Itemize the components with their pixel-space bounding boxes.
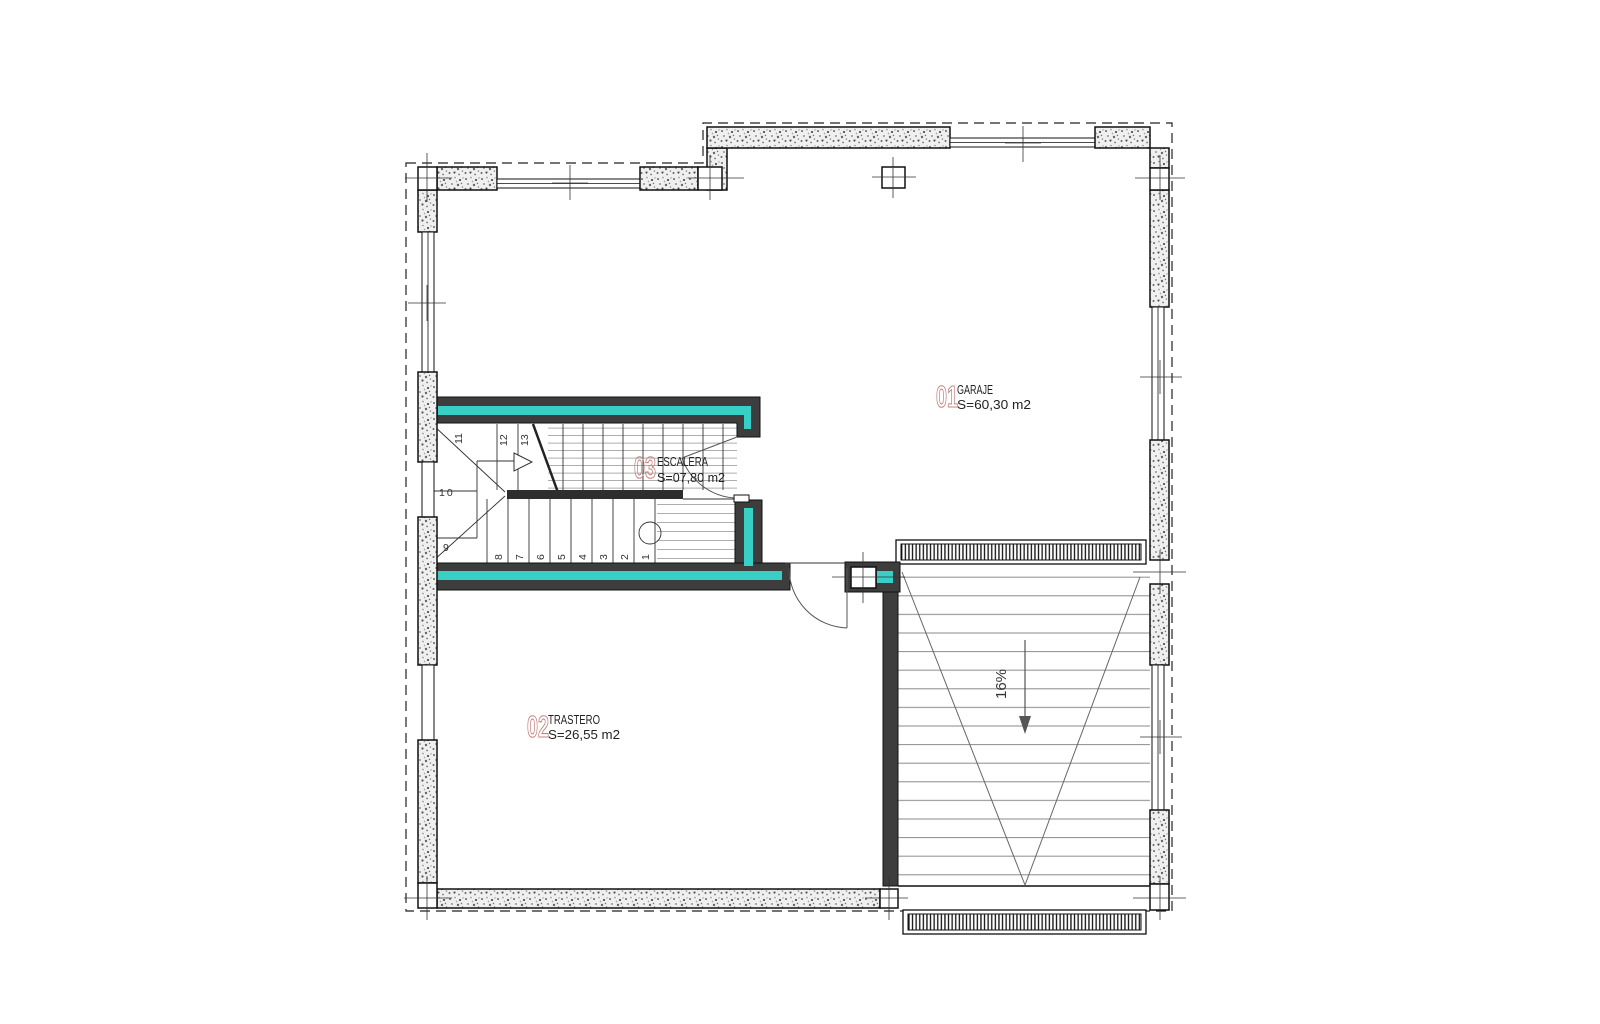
corner-column-top-right (1150, 168, 1169, 190)
svg-text:3: 3 (598, 554, 610, 560)
ramp-head-column (851, 567, 876, 588)
room-number-trastero: 02 (527, 709, 549, 744)
corner-column-bottom-right (1150, 884, 1169, 910)
room-area-escalera: S=07,80 m2 (657, 470, 725, 485)
svg-text:13: 13 (519, 434, 531, 446)
room-number-garaje: 01 (936, 379, 958, 414)
floor-plan-canvas: 16% (0, 0, 1600, 1024)
stair-direction-arrow-icon (514, 453, 532, 471)
room-name-trastero: TRASTERO (548, 712, 600, 727)
room-name-escalera: ESCALERA (657, 454, 708, 469)
svg-text:1: 1 (640, 554, 652, 560)
stair-stem-wall-highlight (744, 508, 753, 566)
svg-text:4: 4 (577, 554, 589, 560)
room-name-garaje: GARAJE (957, 382, 993, 397)
svg-text:2: 2 (619, 554, 631, 560)
svg-text:5: 5 (556, 554, 568, 560)
svg-text:10: 10 (439, 487, 455, 499)
stair-bottom-wall-highlight (437, 571, 782, 580)
room-area-garaje: S=60,30 m2 (957, 397, 1031, 412)
stair-mid-edge (507, 490, 683, 499)
svg-text:6: 6 (535, 554, 547, 560)
garage-column (882, 167, 905, 188)
drain-grate-bottom (903, 910, 1146, 934)
stair-lower-treads (487, 499, 655, 563)
ramp-area: 16% (832, 540, 1150, 934)
trastero-door (785, 563, 847, 628)
svg-text:8: 8 (493, 554, 505, 560)
stair-lower-landing-hatch (657, 499, 735, 563)
ramp-slope-label: 16% (993, 669, 1010, 699)
corner-column-bottom-left (418, 883, 437, 908)
room-label-trastero: 02 TRASTERO S=26,55 m2 (527, 709, 620, 744)
room-number-escalera: 03 (634, 450, 656, 485)
svg-text:11: 11 (453, 433, 465, 444)
stair-door-frame (734, 495, 749, 502)
svg-text:12: 12 (498, 434, 510, 446)
stair-area: 1 2 3 4 5 6 7 8 9 10 11 12 13 (429, 397, 790, 590)
svg-text:7: 7 (514, 554, 526, 560)
floor-plan-page: 16% (0, 0, 1600, 1024)
corner-column-top-left (418, 167, 437, 190)
svg-text:9: 9 (443, 542, 449, 554)
room-area-trastero: S=26,55 m2 (548, 727, 620, 742)
room-label-garaje: 01 GARAJE S=60,30 m2 (936, 379, 1031, 414)
drain-grate-top (896, 540, 1146, 564)
ramp-left-wall (883, 570, 898, 886)
